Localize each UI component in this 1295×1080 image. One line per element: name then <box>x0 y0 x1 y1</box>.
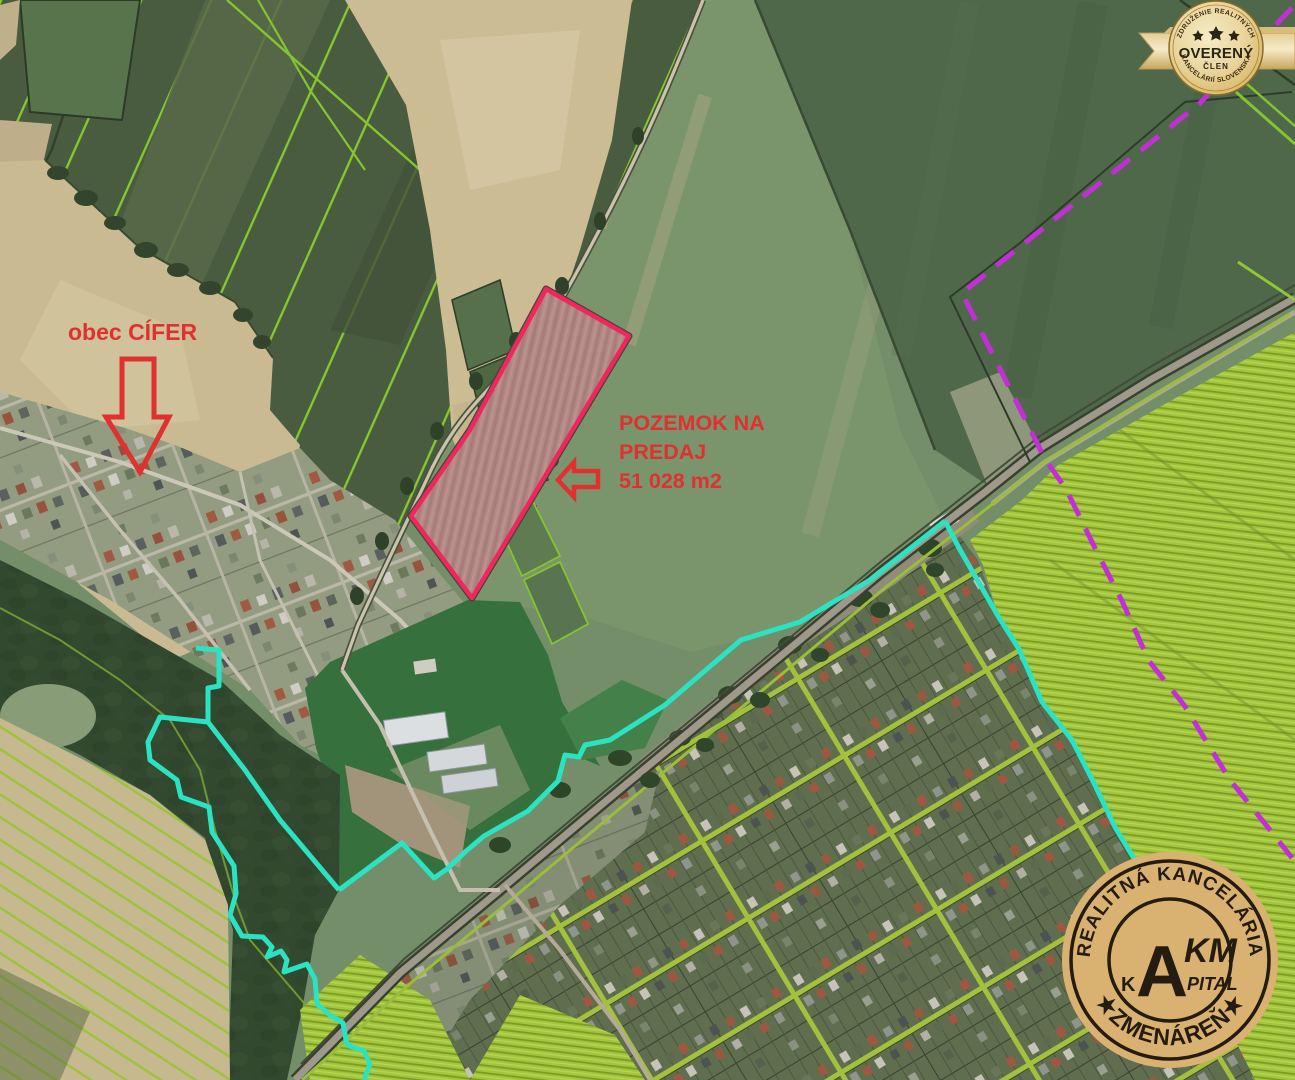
svg-text:A: A <box>1136 932 1188 1012</box>
svg-text:KM: KM <box>1184 932 1238 970</box>
svg-text:OVERENÝ: OVERENÝ <box>1179 44 1254 62</box>
svg-text:PREDAJ: PREDAJ <box>619 440 706 464</box>
svg-text:51 028 m2: 51 028 m2 <box>619 469 722 493</box>
svg-text:ČLEN: ČLEN <box>1203 62 1229 71</box>
svg-text:K: K <box>1121 974 1136 996</box>
svg-text:obec CÍFER: obec CÍFER <box>68 318 197 345</box>
svg-text:PITAL: PITAL <box>1187 974 1238 994</box>
svg-text:POZEMOK NA: POZEMOK NA <box>619 411 765 435</box>
